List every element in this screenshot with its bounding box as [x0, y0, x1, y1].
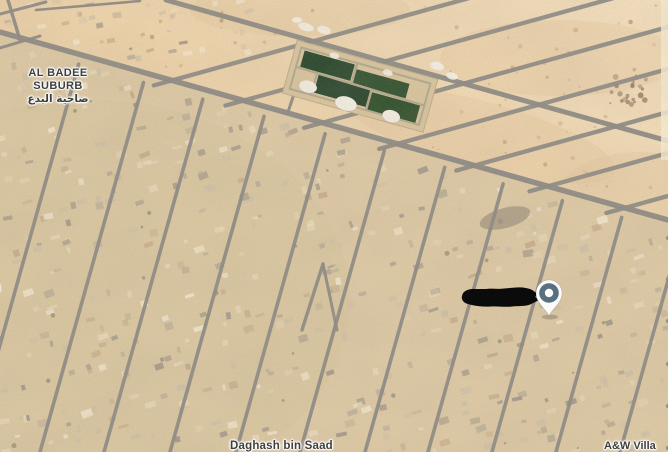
- map-canvas: [0, 0, 668, 452]
- pin-center-dot: [545, 289, 553, 297]
- satellite-map[interactable]: AL BADEE SUBURB ضاحية البدع Daghash bin …: [0, 0, 668, 452]
- redaction-scribble: [463, 288, 537, 305]
